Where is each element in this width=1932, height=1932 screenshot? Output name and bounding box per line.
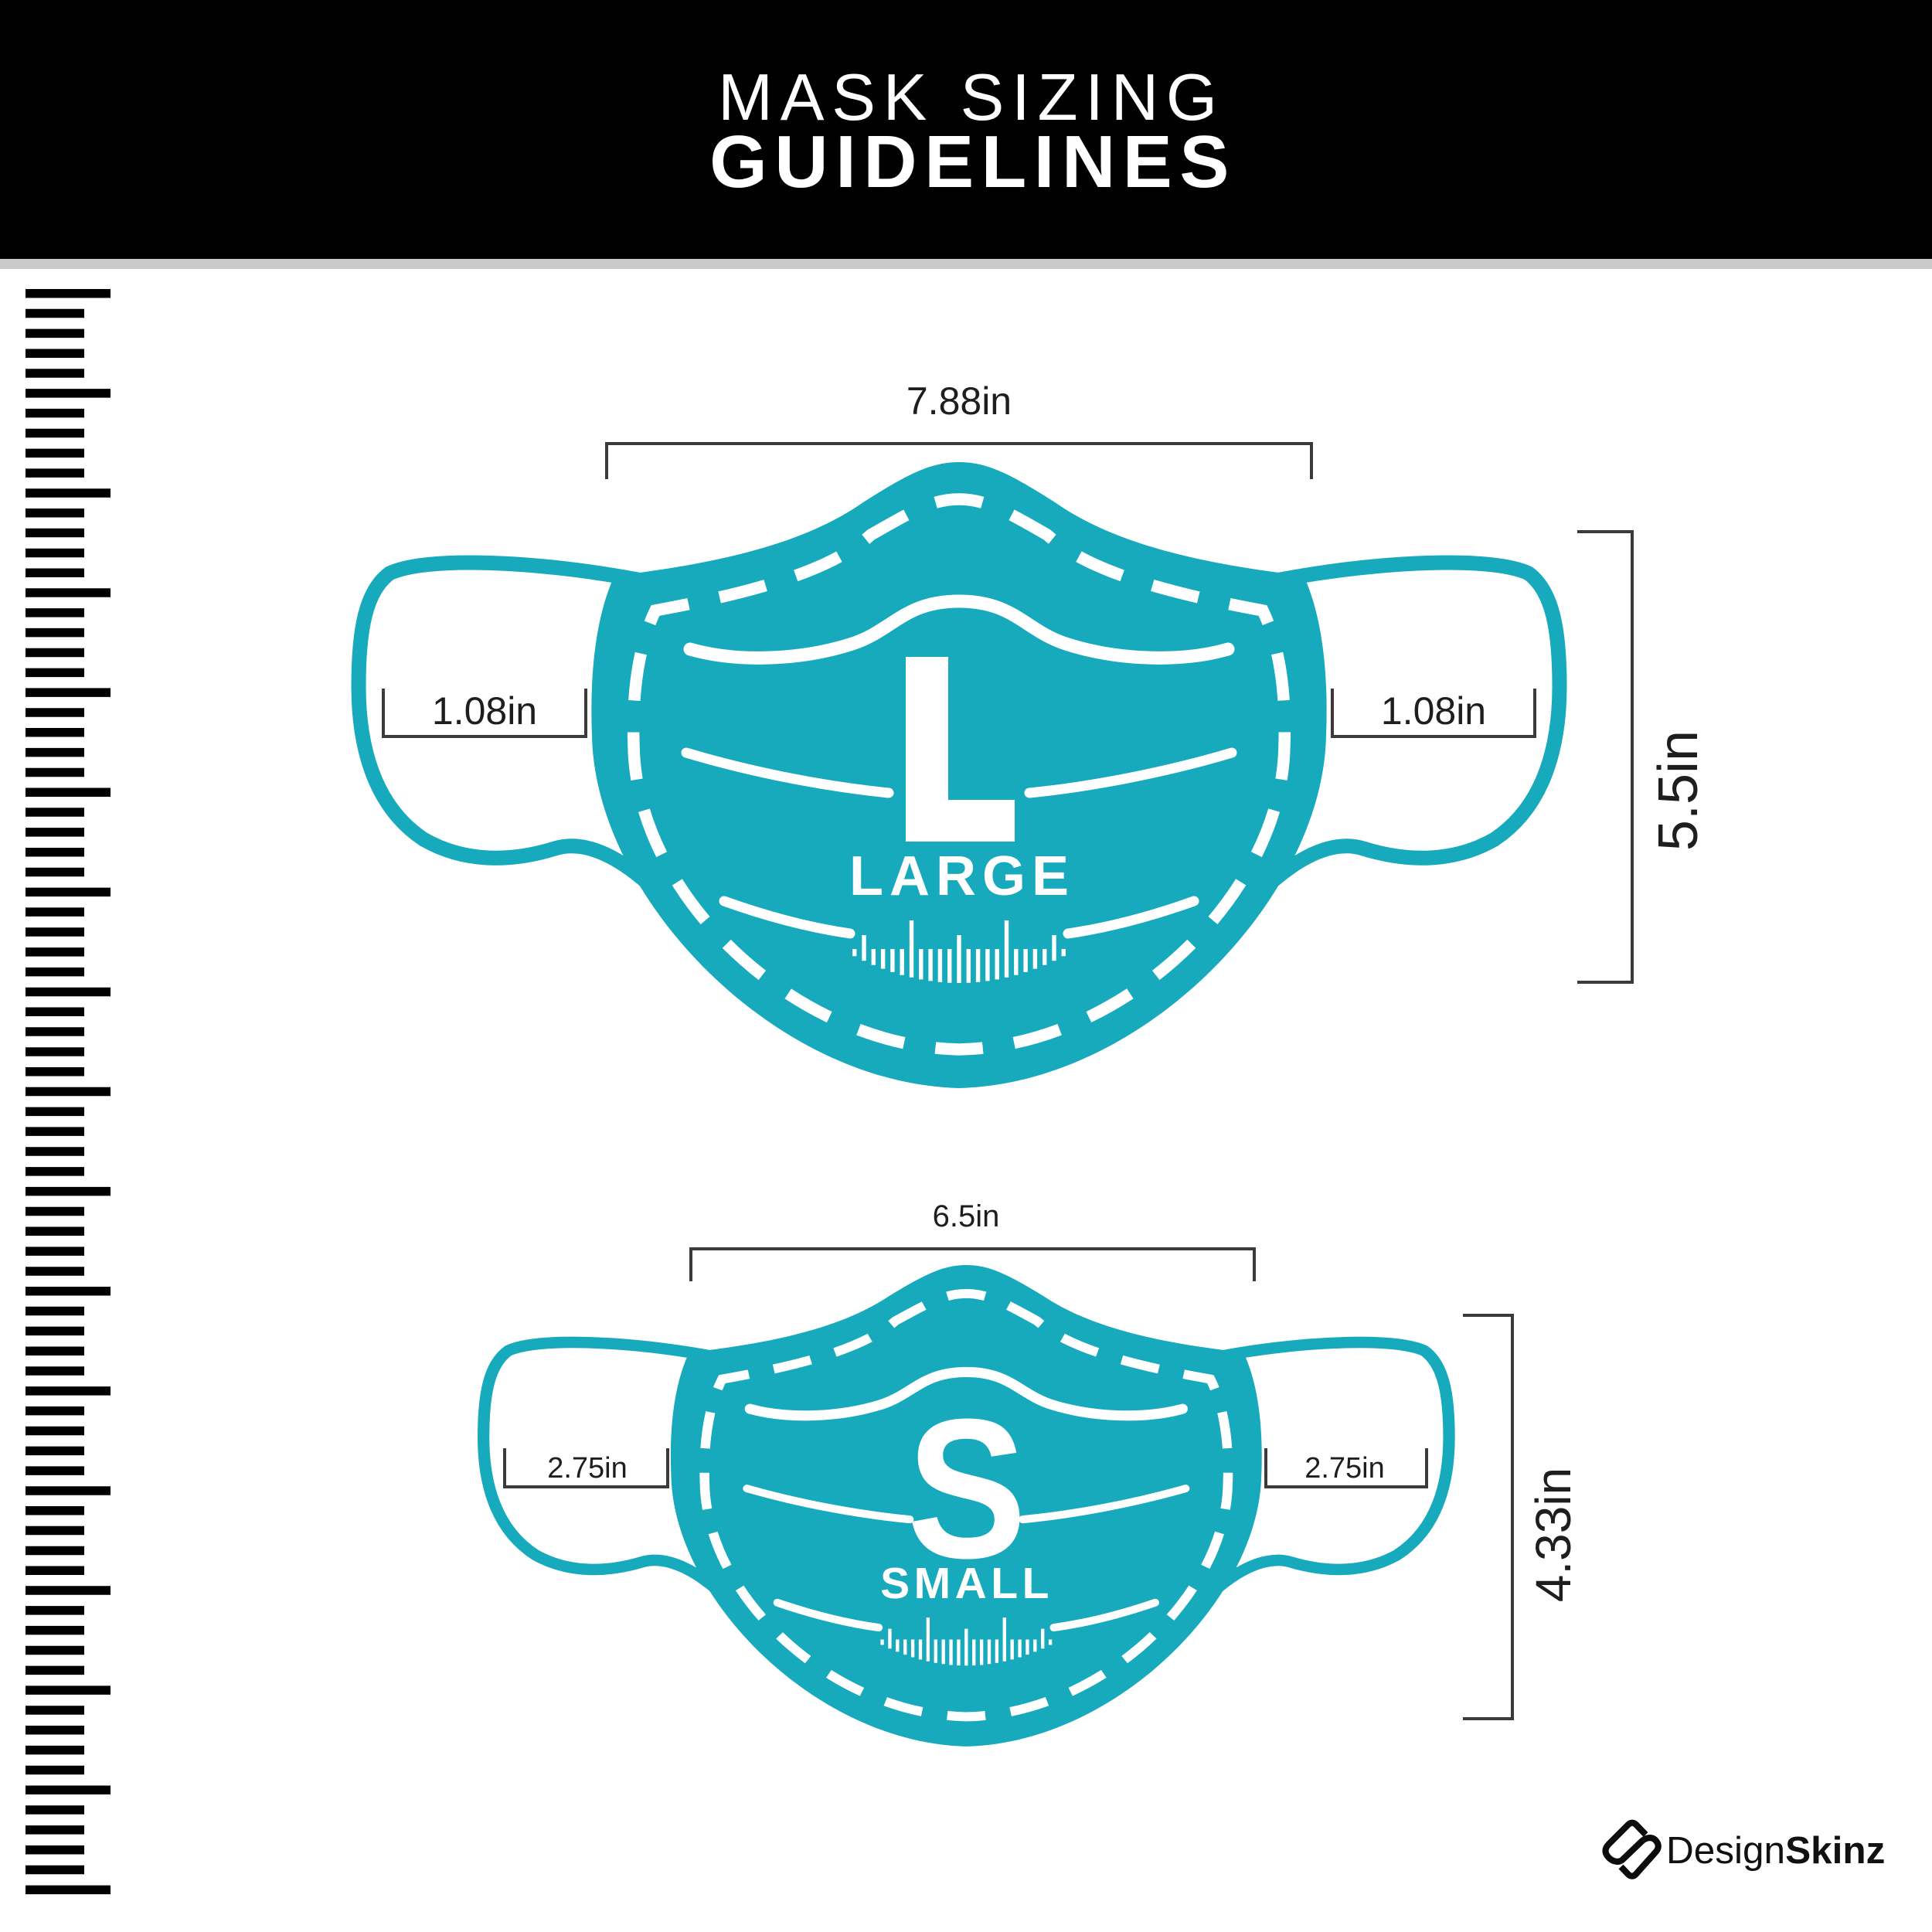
svg-text:5.5in: 5.5in <box>1648 730 1709 851</box>
svg-text:1.08in: 1.08in <box>1381 689 1486 733</box>
svg-text:DesignSkinz: DesignSkinz <box>1666 1829 1885 1872</box>
svg-text:SMALL: SMALL <box>880 1559 1053 1608</box>
svg-text:LARGE: LARGE <box>849 845 1075 907</box>
svg-text:GUIDELINES: GUIDELINES <box>709 121 1236 203</box>
svg-text:2.75in: 2.75in <box>1304 1452 1385 1485</box>
svg-text:2.75in: 2.75in <box>547 1452 628 1485</box>
svg-text:1.08in: 1.08in <box>432 689 537 733</box>
svg-text:7.88in: 7.88in <box>906 379 1012 423</box>
svg-text:6.5in: 6.5in <box>933 1199 1000 1233</box>
svg-text:4.33in: 4.33in <box>1526 1468 1581 1602</box>
